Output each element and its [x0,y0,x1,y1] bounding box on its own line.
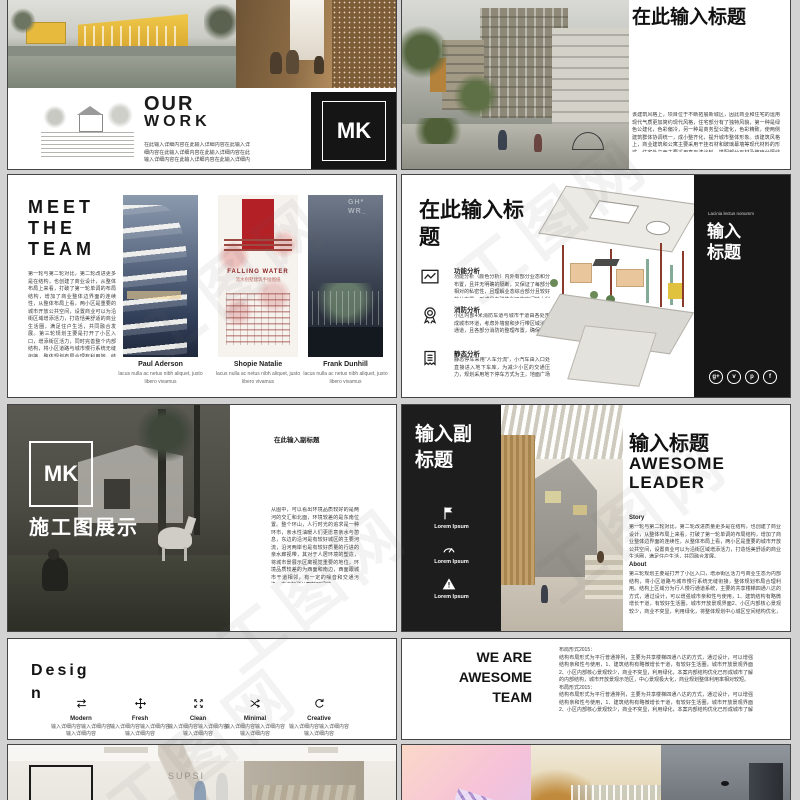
mk-logo: MK [311,92,397,170]
tree-canopy [136,405,196,461]
terrace-strokes [224,239,292,253]
sitting-person [42,557,68,591]
glass-mullions [312,291,379,325]
facebook-icon: f [763,370,777,384]
slide-three-renders[interactable] [401,744,791,800]
pinterest-icon: p [745,370,759,384]
house-window [104,479,130,509]
member-subline: libero vivamus [242,379,274,385]
person-silhouette [498,130,507,150]
about-label: About [629,562,646,568]
member-subtext: lacus nulla ac netus nibh aliquet, justo… [210,371,306,386]
member-name: Shopie Natalie [218,361,298,368]
our-work-band: OUR WORK 在此输入详细内容在此输入详细内容在此输入详细内容在此输入详细内… [8,88,397,170]
lit-window [545,491,561,503]
base-volume [567,325,657,387]
planting-shape [408,118,468,144]
member-subline: lacus nulla ac netus nibh aliquet, justo [303,371,387,377]
team-title: WE ARE AWESOME TEAM [402,647,532,707]
team-body-text: 布局形式2015： 结构布局形式为平行普通排列，主要为共享楼梯四通八达的方式，通… [559,647,753,713]
wall-signage: SUPSI [168,771,205,781]
tree-shape [204,2,236,42]
slide-title: 在此输入标题 [632,2,746,29]
ppt-template-preview-page: 工图网 工图网 工图网 工图网 工图网 [0,0,800,800]
dark-base [308,327,383,357]
house-outline [79,114,103,132]
member-subtext: lacus nulla ac netus nibh aliquet, justo… [113,371,208,386]
falling-water-title: FALLING WATER [218,269,298,275]
water-shape [8,56,236,88]
member-name: Frank Dunhill [308,361,383,368]
title-line: TEAM [402,687,532,707]
flag-icon [441,505,461,521]
member-photo-storm-building: GH* WR_ [308,195,383,357]
lattice-structure [403,788,531,800]
slide-city-title[interactable]: 在此输入标题 该建筑风格上，项目位于不断拓展新城区，因此商业和住宅的运用现代气质… [401,0,791,170]
meet-the-team-title: MEET THE TEAM [28,197,95,260]
panel-item-label: Lorem Ipsum [402,524,501,530]
shuffle-arrows-icon [249,697,262,714]
tree-shape [10,8,36,34]
move-arrows-icon [134,697,147,714]
yellow-pavilion-photo [8,0,236,88]
person-silhouette [534,134,542,152]
member-subtext: lacus nulla ac netus nibh aliquet, justo… [300,371,391,386]
roof-outline [77,106,103,115]
analysis-item-text: 功能分析（颜色分析）内外有部分业态和分布置，且并无明确的隔断，又保证了每部分相对… [454,274,550,298]
right-title-en: AWESOME [629,454,725,474]
lit-window [573,505,587,515]
furniture-box [616,269,644,287]
left-panel: 输入副标题 Lorem Ipsum Lorem Ipsum Lorem Ipsu… [402,405,501,632]
warning-icon [441,576,461,592]
slide-title: 在此输入标题 [419,197,535,252]
ceiling-light [104,747,148,753]
analysis-item-text: 静态停车采用“人车分流”，小汽车由入口处直接进入地下车库，为减少小区的交通压力，… [454,357,550,379]
autumn-campus-photo [531,745,661,800]
desk-shape [592,259,619,266]
bird-shape [721,781,729,786]
slide-awesome-leader[interactable]: 输入副标题 Lorem Ipsum Lorem Ipsum Lorem Ipsu… [401,404,791,632]
person-silhouette [286,50,299,74]
person-silhouette [314,56,324,74]
axonometric-drawing [542,187,692,387]
horse-leg [184,547,187,561]
slide-body-text: 该建筑风格上，项目位于不断拓展新城区，因此商业和住宅的运用现代气质更加简约现代风… [632,112,780,152]
card3-mark: WR_ [348,208,367,215]
sub-title: 输入副标题 [415,422,481,473]
design-item-label: Creative [279,716,359,722]
team-intro-text: 第一轮与第二轮对比，第二轮改进更多是在结构，也创建了商业设计，从整体布局上来看，… [28,271,116,357]
balcony-bands [123,205,187,355]
pink-lattice-photo [402,745,531,800]
title-line: AWESOME [402,667,532,687]
slide-our-work[interactable]: OUR WORK 在此输入详细内容在此输入详细内容在此输入详细内容在此输入详细内… [7,0,397,170]
googleplus-icon: g+ [709,370,723,384]
dark-building [749,763,783,800]
tree-sketch [43,104,67,130]
section-sketch-drawing [41,98,134,160]
hatch-lines [41,132,134,158]
story-label: Story [629,515,644,521]
person-silhouette [216,773,228,800]
tree-trunk [194,405,200,535]
analysis-item-text: 小区内部4米消防车道与城市干道由各处形成城市环道，考虑外墙窗和步行带区域消防通道… [454,313,550,333]
member-subline: lacus nulla ac netus nibh aliquet, justo [216,371,300,377]
falling-water-subtitle: 流水别墅建筑手绘图纸 [218,277,298,283]
work-label: WORK [144,113,211,131]
person-silhouette [194,781,206,800]
panel-item-label: Lorem Ipsum [402,559,501,565]
member-subline: lacus nulla ac netus nibh aliquet, justo [118,371,202,377]
medal-icon [420,305,440,330]
slide-interior-stairs[interactable]: SUPSI MK [7,744,397,800]
vimeo-icon: v [727,370,741,384]
stairs-shape [585,555,623,599]
member-photo-dusk-building [123,195,198,357]
chart-icon [420,267,440,292]
window-mullions [84,26,182,48]
tree-shape [454,72,498,120]
mk-outline-logo-dark: MK [29,765,93,800]
slide-meet-the-team[interactable]: MEET THE TEAM 第一轮与第二轮对比，第二轮改进更多是在结构，也创建了… [7,174,397,398]
title-line: WE ARE [402,647,532,667]
title-line: THE [28,218,95,239]
right-title-en: LEADER [629,473,705,493]
person-head [48,549,59,560]
plant-dot [550,279,558,287]
card3-mark: GH* [348,199,364,206]
meadow-house-photo: MK 施工图展示 [8,405,230,632]
white-building [552,28,629,124]
atrium-people-photo [236,0,397,88]
person-silhouette [597,551,604,563]
deck-shape [8,46,236,56]
interior-hall-photo [501,405,623,632]
about-text: 第三轮规划主要是打开了小区入口，增添街区活力与商业生态为内部结构，将小区道路与城… [629,571,781,615]
title-line: TEAM [28,239,95,260]
glass-building [571,785,661,800]
mk-logo-text: MK [337,118,371,144]
design-item-text: 输入详细内容输入详细内容 输入详细内容 [279,724,359,738]
panel-small-text: Lacinia lectus nonumm [708,211,754,216]
gauge-icon [441,541,461,557]
section-sketch-strokes [226,293,290,345]
slide-analysis[interactable]: 在此输入标题 功能分析 功能分析（颜色分析）内外有部分业态和分布置，且并无明确的… [401,174,791,398]
our-work-description: 在此输入详细内容在此输入详细内容在此输入详细内容在此输入详细内容在此输入详细内容… [144,142,250,162]
expand-arrows-icon [192,697,205,714]
street-scene-photo [402,0,629,170]
side-panel: Lacinia lectus nonumm 输入标题 g+vpf [694,175,791,398]
refresh-icon [313,697,326,714]
grass-shape [8,555,230,632]
member-name: Paul Aderson [123,361,198,368]
mk-outline-logo: MK [29,441,93,507]
red-column [660,243,662,307]
body-text: 从图中，可以看出环境品质较好的是两河的交汇和北面，环境较差的是东南位置。整个环山… [271,507,359,583]
perforated-wall [332,0,397,88]
member-subline: libero vivamus [145,379,177,385]
teal-post [646,259,649,303]
tree-sketch [107,100,133,130]
design-item: Creative 输入详细内容输入详细内容 输入详细内容 [279,697,359,738]
furniture-box [570,263,592,283]
subtitle: 在此输入副标题 [274,434,320,444]
member-photo-falling-water: FALLING WATER 流水别墅建筑手绘图纸 [218,195,298,357]
slide-construction-drawings[interactable]: MK 施工图展示 在此输入副标题 从图中，可以看出环境品质较好的是两河的交汇和北… [7,404,397,632]
horse-leg [162,547,165,561]
person-silhouette [541,585,548,603]
slide-design[interactable]: Design Modern 输入详细内容输入详细内容 输入详细内容 Fresh … [7,638,397,740]
panel-title: 输入标题 [707,221,745,264]
stair-hall-photo: SUPSI MK [8,745,396,800]
tree-shape [402,24,448,80]
member-subline: libero vivamus [330,379,362,385]
social-icons: g+vpf [704,365,782,384]
person-silhouette [270,52,282,74]
swap-arrows-icon [75,697,88,714]
dark-landscape-photo [661,745,790,800]
ceiling-light [308,747,338,753]
yellow-element [668,283,682,299]
right-title-cn: 输入标题 [629,427,709,456]
panel-item-label: Lorem Ipsum [402,594,501,600]
lit-floor [127,291,181,299]
construction-title: 施工图展示 [29,511,139,540]
title-line: MEET [28,197,95,218]
story-text: 第一轮与第二轮对比，第二轮改进质量更多是在结构，也创建了商业设计，从整体布局上来… [629,524,781,558]
receipt-icon [420,349,440,374]
slide-awesome-team[interactable]: WE ARE AWESOME TEAM 布局形式2015： 结构布局形式为平行普… [401,638,791,740]
red-column [682,251,684,307]
wood-wall [501,435,535,585]
mk-logo-text: MK [44,461,78,487]
